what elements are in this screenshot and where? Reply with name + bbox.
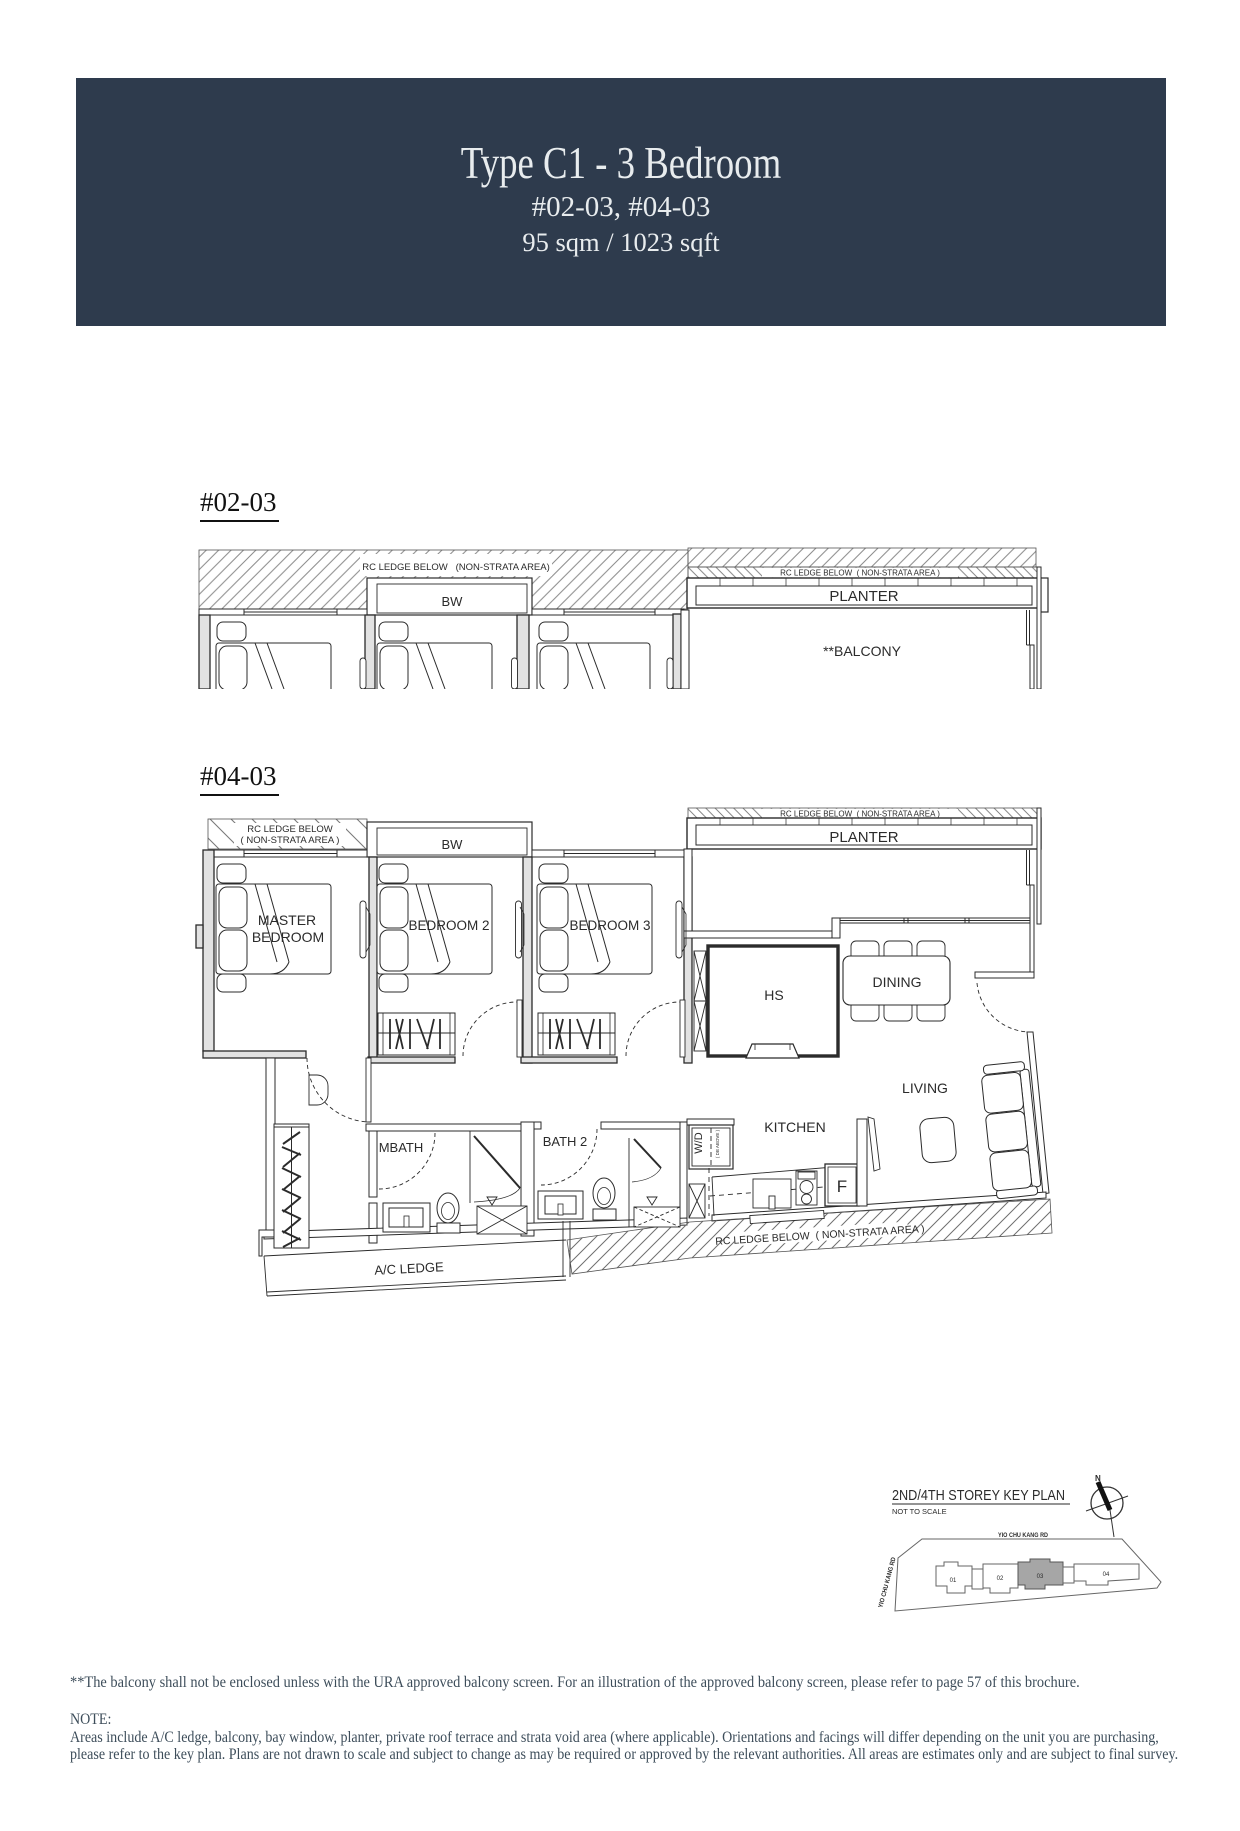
svg-text:NOT TO SCALE: NOT TO SCALE [892, 1507, 947, 1516]
svg-text:F: F [837, 1177, 847, 1196]
svg-text:( DB ABOVE ): ( DB ABOVE ) [715, 1129, 720, 1158]
svg-text:01: 01 [950, 1578, 957, 1584]
svg-text:**BALCONY: **BALCONY [823, 643, 901, 659]
svg-text:BW: BW [442, 594, 464, 609]
svg-text:KITCHEN: KITCHEN [764, 1119, 825, 1135]
svg-text:BEDROOM 2: BEDROOM 2 [408, 918, 489, 933]
svg-text:DINING: DINING [873, 974, 922, 990]
svg-text:HS: HS [764, 987, 783, 1003]
svg-text:PLANTER: PLANTER [829, 829, 898, 846]
svg-text:04: 04 [1103, 1572, 1110, 1578]
svg-text:W/D: W/D [693, 1132, 705, 1153]
svg-text:RC LEDGE BELOW ( NON-STRATA A: RC LEDGE BELOW ( NON-STRATA AREA ) [780, 810, 940, 819]
svg-text:03: 03 [1037, 1574, 1044, 1580]
svg-text:YIO CHU KANG RD: YIO CHU KANG RD [998, 1532, 1048, 1539]
svg-text:RC LEDGE BELOW: RC LEDGE BELOW [247, 824, 333, 835]
svg-text:N: N [1095, 1474, 1101, 1483]
svg-text:RC LEDGE BELOW (NON-STRATA A: RC LEDGE BELOW (NON-STRATA AREA) [362, 562, 550, 573]
svg-text:( NON-STRATA AREA ): ( NON-STRATA AREA ) [241, 835, 340, 846]
svg-text:A/C LEDGE: A/C LEDGE [374, 1259, 444, 1278]
svg-text:MASTER: MASTER [258, 912, 316, 928]
svg-text:BEDROOM 3: BEDROOM 3 [569, 918, 650, 933]
svg-text:YIO CHU KANG RD: YIO CHU KANG RD [877, 1556, 897, 1608]
svg-text:PLANTER: PLANTER [829, 588, 898, 605]
svg-text:BEDROOM: BEDROOM [252, 929, 324, 945]
svg-text:02: 02 [997, 1576, 1004, 1582]
svg-text:RC LEDGE BELOW ( NON-STRATA A: RC LEDGE BELOW ( NON-STRATA AREA ) [780, 569, 940, 578]
svg-text:2ND/4TH STOREY KEY PLAN: 2ND/4TH STOREY KEY PLAN [892, 1487, 1065, 1504]
svg-text:BATH 2: BATH 2 [543, 1134, 588, 1149]
svg-text:LIVING: LIVING [902, 1080, 948, 1096]
svg-text:MBATH: MBATH [379, 1140, 424, 1155]
svg-text:BW: BW [442, 837, 464, 852]
